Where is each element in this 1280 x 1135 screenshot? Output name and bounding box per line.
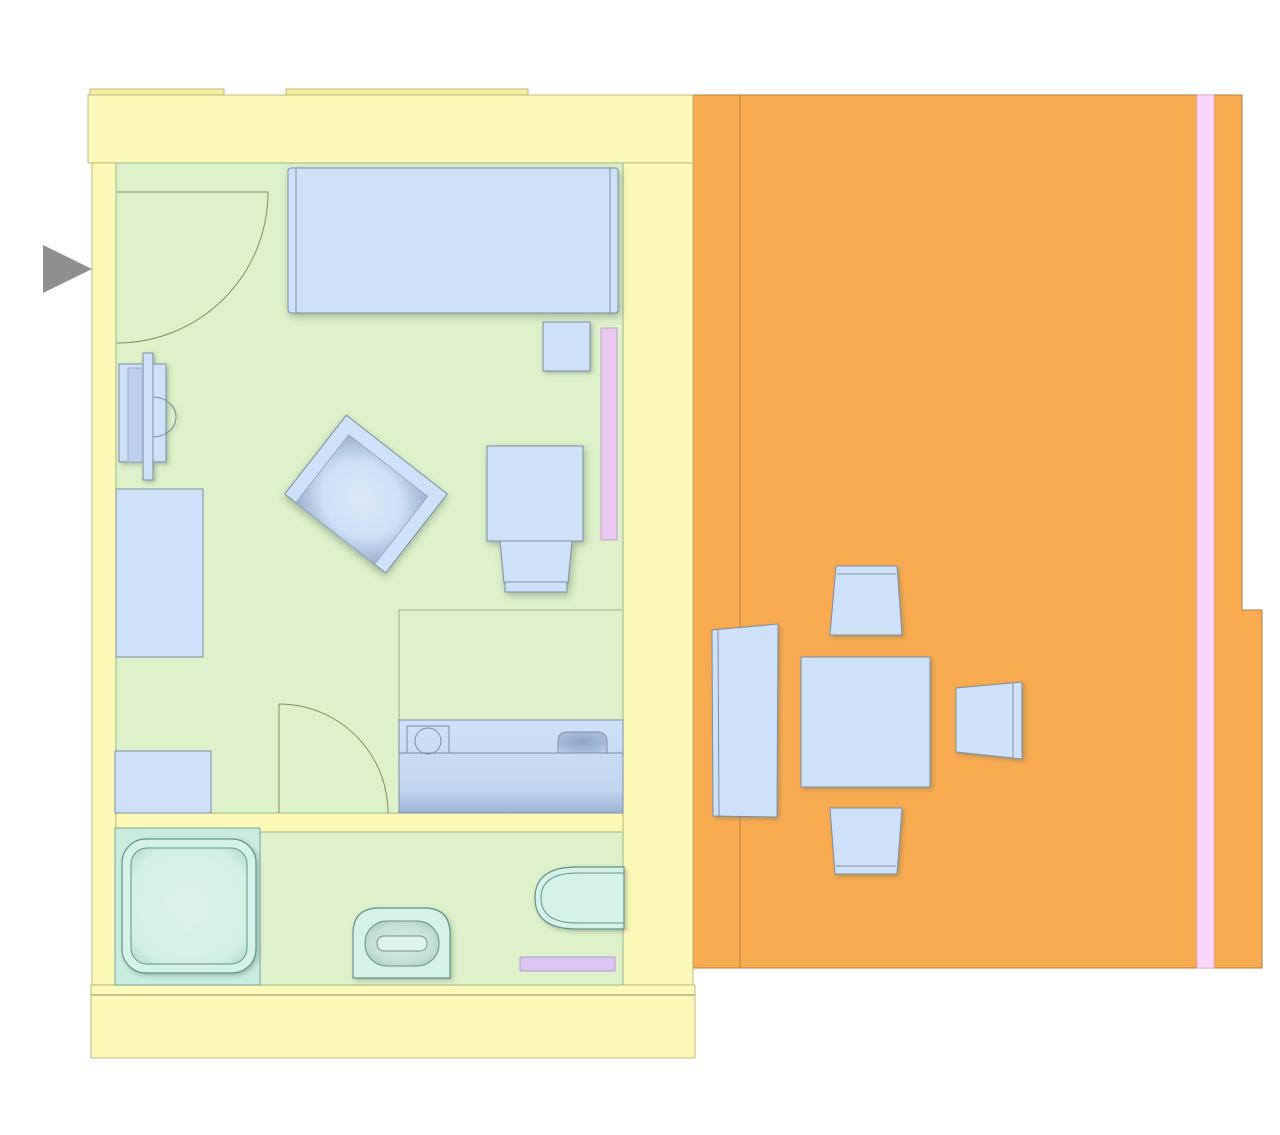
shower-tray-inner [131, 848, 247, 964]
floor-plan-canvas [0, 0, 1280, 1135]
kitchen-sink [558, 732, 607, 753]
terrace-curtain-strip [1197, 95, 1214, 968]
desk [487, 446, 583, 541]
desk-chair [500, 541, 572, 583]
floor-plan-drawing [0, 0, 1280, 1135]
entry-arrow [43, 245, 92, 293]
wall-right [623, 163, 693, 985]
wall-bottom-slab [91, 985, 695, 1058]
wardrobe [116, 489, 203, 657]
wall-top [88, 95, 693, 163]
terrace-chair-right [956, 682, 1022, 759]
shower [115, 828, 260, 985]
wall-left [92, 163, 116, 985]
toilet-flush-pill [377, 936, 427, 951]
desk-chair-backrest [505, 582, 567, 592]
terrace-table [801, 657, 930, 787]
low-cabinet [115, 751, 211, 813]
window-curtain-strip [601, 328, 617, 540]
washbasin [535, 867, 624, 929]
toilet [353, 908, 450, 978]
sun-lounger [712, 624, 778, 817]
nightstand [543, 322, 590, 371]
terrace-area [693, 95, 1262, 968]
tv-screen-bar [143, 353, 153, 480]
terrace-floor [693, 95, 1262, 968]
terrace-chair-bottom [830, 808, 902, 874]
washbasin-body [535, 867, 624, 929]
terrace-chair-top [830, 566, 902, 635]
double-bed [288, 168, 618, 313]
towel-radiator-strip [520, 957, 615, 971]
